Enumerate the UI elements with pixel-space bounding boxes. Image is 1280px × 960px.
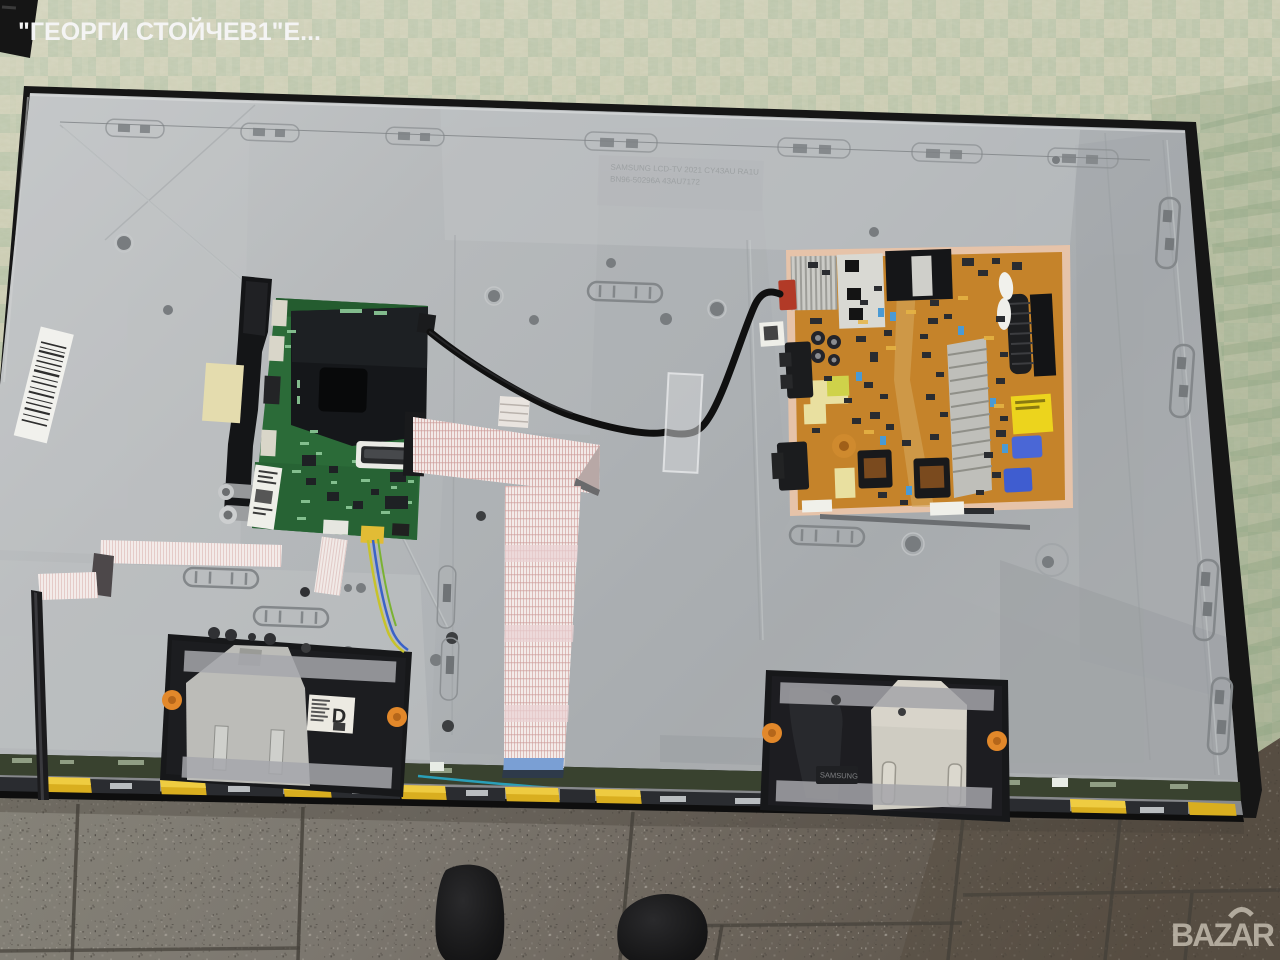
svg-text:BAZAR: BAZAR	[1171, 917, 1275, 953]
svg-text:D: D	[331, 705, 347, 728]
svg-text:"ГЕОРГИ СТОЙЧЕВ1"Е...: "ГЕОРГИ СТОЙЧЕВ1"Е...	[18, 16, 321, 46]
svg-text:SAMSUNG: SAMSUNG	[820, 770, 858, 780]
